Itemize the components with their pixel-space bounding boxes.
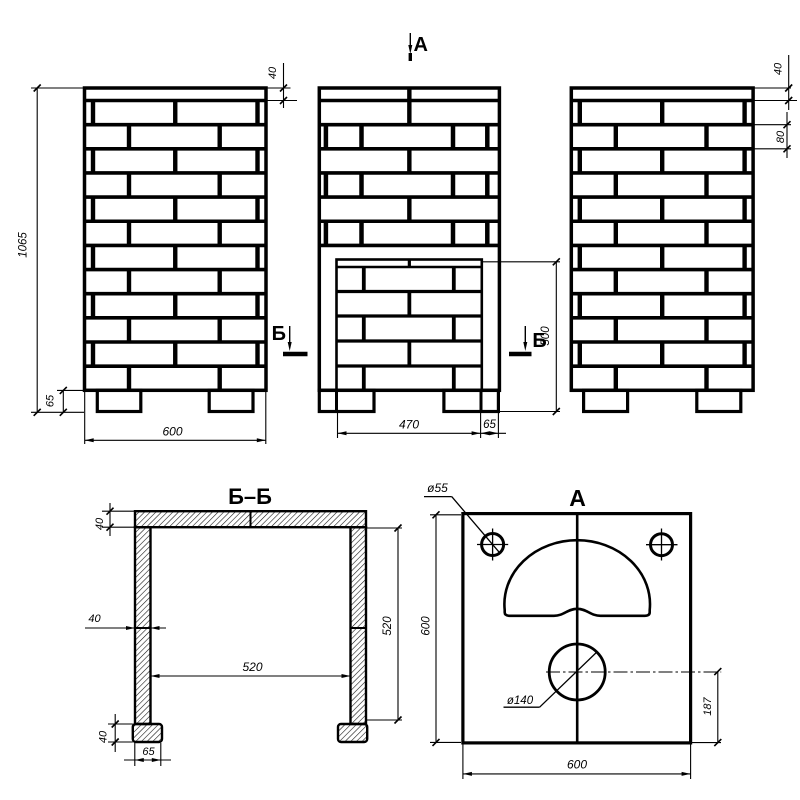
svg-text:600: 600: [162, 425, 182, 439]
svg-text:65: 65: [142, 746, 155, 758]
svg-text:40: 40: [88, 613, 101, 625]
svg-text:65: 65: [45, 394, 57, 407]
svg-text:65: 65: [483, 419, 496, 431]
svg-text:187: 187: [702, 696, 714, 715]
svg-text:80: 80: [775, 130, 787, 143]
svg-text:Б: Б: [272, 323, 286, 345]
svg-text:520: 520: [382, 616, 394, 636]
svg-text:А: А: [413, 34, 427, 56]
svg-text:520: 520: [242, 660, 262, 674]
svg-text:40: 40: [98, 730, 110, 743]
svg-text:Б: Б: [532, 330, 546, 352]
svg-text:40: 40: [773, 62, 785, 75]
svg-text:600: 600: [421, 616, 433, 636]
svg-text:600: 600: [567, 758, 587, 772]
svg-text:40: 40: [267, 66, 279, 79]
svg-text:40: 40: [94, 517, 106, 530]
svg-text:ø55: ø55: [427, 481, 448, 495]
svg-text:470: 470: [399, 418, 419, 432]
svg-text:А: А: [569, 485, 586, 511]
svg-text:1065: 1065: [18, 232, 30, 258]
svg-text:Б–Б: Б–Б: [228, 484, 272, 509]
svg-text:ø140: ø140: [507, 695, 534, 707]
